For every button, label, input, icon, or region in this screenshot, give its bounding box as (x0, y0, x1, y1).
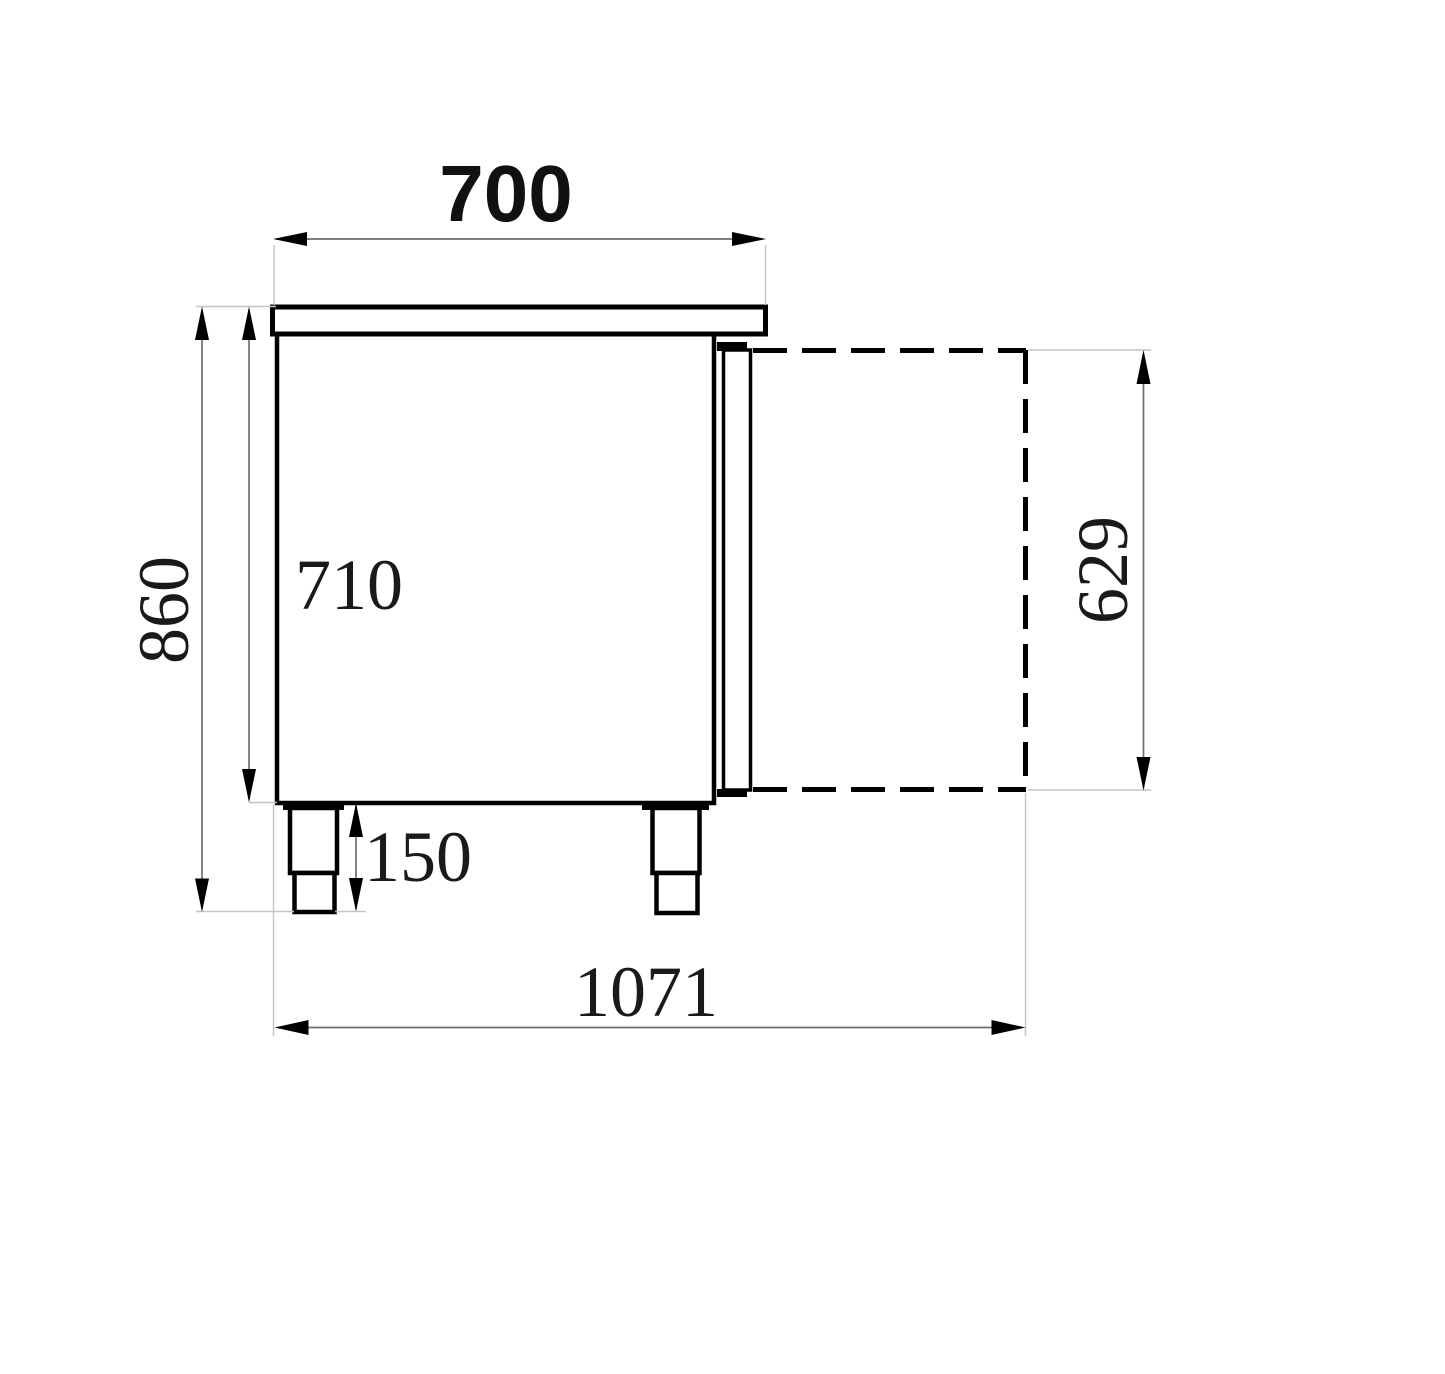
arrowhead-up-icon (242, 307, 256, 341)
label-leg-height: 150 (364, 817, 472, 897)
open-door-outline (753, 350, 1026, 790)
dimension-overall-depth: 1071 (275, 952, 1026, 1035)
arrowhead-down-icon (1137, 757, 1151, 791)
arrowhead-right-icon (992, 1020, 1026, 1035)
arrowhead-right-icon (732, 232, 766, 246)
label-overall-height: 860 (124, 556, 204, 664)
label-overall-depth: 1071 (574, 952, 718, 1032)
left-leg-upper (290, 808, 337, 873)
door-hinge-top (717, 342, 747, 351)
arrowhead-up-icon (349, 803, 363, 837)
arrowhead-down-icon (195, 879, 209, 913)
dimension-door-height: 629 (1063, 350, 1151, 791)
dimension-leg-height: 150 (349, 803, 472, 912)
dimension-top-width: 700 (273, 149, 766, 246)
dimension-drawing: 700 860 710 150 629 1071 (0, 0, 1445, 1374)
arrowhead-up-icon (195, 307, 209, 341)
arrowhead-down-icon (242, 769, 256, 803)
left-leg-foot (295, 873, 335, 912)
label-top-width: 700 (439, 149, 572, 238)
door-panel (724, 350, 751, 790)
arrowhead-up-icon (1137, 350, 1151, 384)
label-body-height: 710 (295, 545, 403, 625)
arrowhead-left-icon (275, 1020, 309, 1035)
arrowhead-left-icon (273, 232, 307, 246)
right-leg-upper (653, 808, 700, 873)
right-leg-foot (657, 873, 698, 913)
countertop (273, 307, 766, 334)
door-hinge-bottom (717, 789, 747, 797)
dimension-overall-height: 860 (124, 307, 209, 913)
arrowhead-down-icon (349, 878, 363, 912)
label-door-height: 629 (1063, 516, 1143, 624)
